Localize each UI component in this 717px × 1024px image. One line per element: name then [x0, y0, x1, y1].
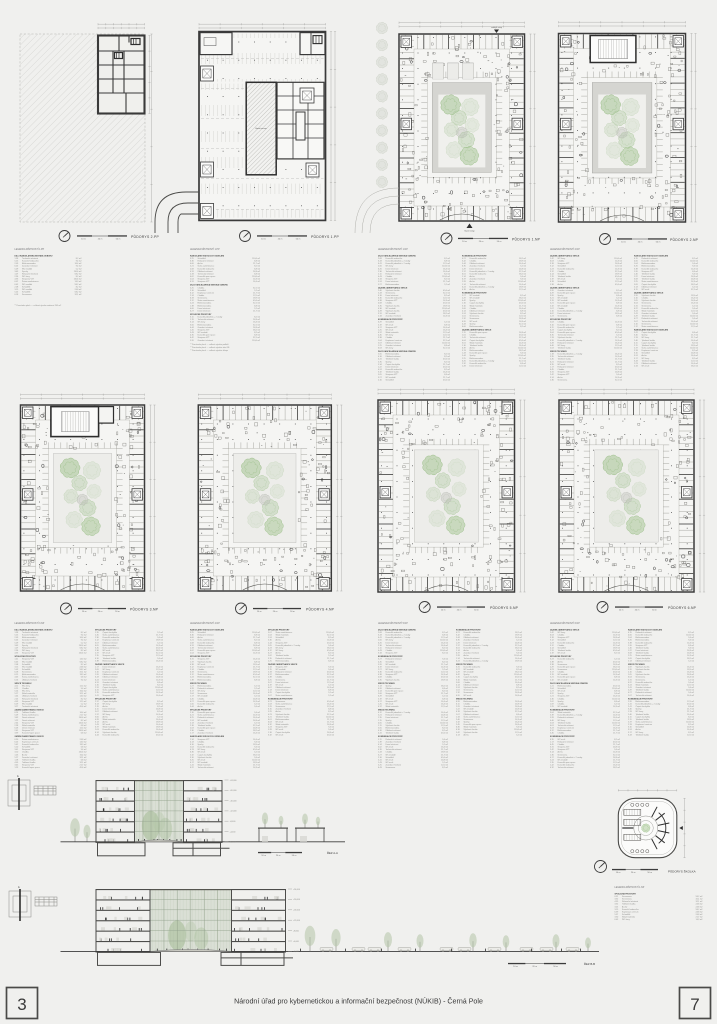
svg-text:10 m: 10 m: [81, 238, 86, 240]
svg-text:Elektrorozvodna: Elektrorozvodna: [103, 644, 118, 647]
svg-text:Archiv: Archiv: [470, 280, 475, 283]
svg-text:Zasedací místnost: Zasedací místnost: [198, 339, 214, 342]
svg-text:LEGENDA MÍSTNOSTÍ 6.NP: LEGENDA MÍSTNOSTÍ 6.NP: [550, 622, 580, 625]
svg-text:8,2 m2: 8,2 m2: [442, 653, 448, 655]
svg-text:24,8 m2: 24,8 m2: [515, 695, 522, 697]
svg-text:Zasedací místnost: Zasedací místnost: [464, 705, 480, 708]
svg-text:Schodiště: Schodiště: [558, 265, 566, 268]
svg-text:Kopírovací centrum: Kopírovací centrum: [103, 671, 120, 674]
svg-text:DILCI KANCELARSKA SESTAVA ODBO: DILCI KANCELARSKA SESTAVA ODBORU: [378, 628, 417, 631]
svg-text:Kancelář jednotlivá + 2 osoby: Kancelář jednotlivá + 2 osoby: [470, 359, 495, 362]
svg-text:4.41: 4.41: [378, 733, 382, 735]
svg-text:Archiv: Archiv: [470, 347, 475, 350]
svg-text:Výtahová šachta: Výtahová šachta: [386, 304, 401, 307]
svg-text:+16,000: +16,000: [230, 800, 237, 802]
svg-text:Technická místnost: Technická místnost: [470, 336, 487, 339]
svg-text:Technická místnost: Technická místnost: [386, 644, 403, 647]
svg-text:Strojovna VZT: Strojovna VZT: [636, 644, 649, 647]
svg-text:2.34: 2.34: [378, 316, 382, 318]
svg-text:Relaxační místnost: Relaxační místnost: [558, 341, 575, 344]
svg-text:Elektrorozvodna: Elektrorozvodna: [642, 265, 657, 268]
svg-text:Denní místnost: Denní místnost: [386, 716, 399, 719]
svg-text:Serverovna: Serverovna: [642, 302, 653, 305]
svg-text:3.27: 3.27: [15, 706, 19, 708]
svg-text:Archiv: Archiv: [470, 288, 475, 291]
svg-text:Archiv: Archiv: [558, 751, 563, 754]
svg-text:Úklidová místnost: Úklidová místnost: [22, 695, 37, 698]
svg-text:32,1 m2: 32,1 m2: [615, 379, 622, 381]
svg-text:KOMUNIKACNI PROSTORY: KOMUNIKACNI PROSTORY: [550, 709, 575, 712]
svg-text:Technická místnost: Technická místnost: [22, 257, 39, 260]
svg-text:Zasedací místnost: Zasedací místnost: [386, 315, 402, 318]
svg-text:21,7 m2: 21,7 m2: [613, 733, 620, 735]
svg-text:Schodiště: Schodiště: [198, 631, 206, 634]
svg-text:Technická místnost: Technická místnost: [198, 318, 215, 321]
svg-text:KOMUNIKACNI PROSTORY: KOMUNIKACNI PROSTORY: [268, 697, 293, 700]
svg-text:Šatna zaměstnanců: Šatna zaměstnanců: [198, 265, 215, 268]
svg-text:PŮDORYS 4.NP: PŮDORYS 4.NP: [306, 607, 335, 612]
svg-text:Denní místnost: Denní místnost: [386, 665, 399, 668]
svg-text:1.29: 1.29: [550, 706, 554, 708]
svg-text:Archiv: Archiv: [198, 636, 203, 639]
svg-text:Strojovna VZT: Strojovna VZT: [22, 764, 35, 767]
svg-text:6.18: 6.18: [15, 294, 19, 296]
svg-text:Kancelář jednotlivá + 2 osoby: Kancelář jednotlivá + 2 osoby: [386, 262, 411, 265]
svg-text:14,3 m2: 14,3 m2: [443, 316, 450, 318]
svg-text:Zasedací místnost: Zasedací místnost: [198, 721, 214, 724]
svg-text:Výtahová šachta: Výtahová šachta: [558, 336, 573, 339]
svg-text:2.34: 2.34: [634, 366, 638, 368]
svg-text:Elektrorozvodna: Elektrorozvodna: [198, 302, 213, 305]
svg-text:Elektrorozvodna: Elektrorozvodna: [470, 349, 485, 352]
svg-text:Zasedací místnost: Zasedací místnost: [464, 652, 480, 655]
svg-text:12,5 m2: 12,5 m2: [441, 706, 448, 708]
svg-text:5,2 m2: 5,2 m2: [688, 660, 694, 662]
svg-text:Technická místnost: Technická místnost: [198, 766, 215, 769]
svg-text:Šatna zaměstnanců: Šatna zaměstnanců: [276, 694, 293, 697]
svg-text:Archiv: Archiv: [636, 728, 641, 731]
svg-text:Sprchy: Sprchy: [198, 743, 204, 746]
svg-text:Sprchy: Sprchy: [22, 644, 28, 647]
svg-text:KOMUNIKACNI PROSTORY: KOMUNIKACNI PROSTORY: [378, 655, 403, 658]
svg-text:10 m: 10 m: [619, 609, 624, 611]
svg-text:Archiv: Archiv: [464, 649, 469, 652]
svg-text:10 m: 10 m: [261, 238, 266, 240]
svg-text:20 m: 20 m: [638, 241, 643, 243]
svg-text:Relaxační místnost: Relaxační místnost: [276, 657, 293, 660]
svg-text:5.27: 5.27: [378, 284, 382, 286]
svg-text:Chodba: Chodba: [558, 733, 566, 735]
svg-text:ZAZEMI ZAMESTNANCU SEKCE: ZAZEMI ZAMESTNANCU SEKCE: [550, 254, 580, 257]
svg-text:20 m: 20 m: [635, 609, 640, 611]
svg-text:2.23: 2.23: [550, 316, 554, 318]
svg-text:Výtahová šachta: Výtahová šachta: [642, 294, 657, 297]
svg-text:Výtahová šachta: Výtahová šachta: [636, 665, 651, 668]
svg-text:Šatna zaměstnanců: Šatna zaměstnanců: [103, 689, 120, 692]
svg-text:4.13: 4.13: [456, 734, 460, 736]
svg-text:Denní místnost: Denní místnost: [636, 649, 649, 652]
svg-text:Šatna zaměstnanců: Šatna zaměstnanců: [464, 715, 481, 718]
svg-text:KOMUNIKACNI PROSTORY: KOMUNIKACNI PROSTORY: [462, 254, 487, 257]
svg-text:18,9 m2: 18,9 m2: [441, 679, 448, 681]
svg-text:Čajová kuchyňka: Čajová kuchyňka: [642, 341, 657, 344]
svg-text:3.39: 3.39: [15, 733, 19, 735]
svg-text:Šatna zaměstnanců: Šatna zaměstnanců: [276, 702, 293, 705]
svg-text:Technická místnost: Technická místnost: [22, 705, 39, 708]
svg-text:Archiv: Archiv: [470, 275, 475, 278]
svg-text:Výtahová šachta: Výtahová šachta: [386, 678, 401, 681]
svg-text:Serverovna: Serverovna: [558, 663, 569, 666]
svg-text:12,5 m2: 12,5 m2: [519, 366, 526, 368]
svg-text:Denní místnost: Denní místnost: [470, 267, 483, 270]
svg-text:ZAZEMI ZAMESTNANCU SEKCE: ZAZEMI ZAMESTNANCU SEKCE: [15, 709, 45, 712]
svg-text:Čajová kuchyňka: Čajová kuchyňka: [642, 283, 657, 286]
svg-text:Denní místnost: Denní místnost: [386, 267, 399, 270]
svg-text:Úklidová místnost: Úklidová místnost: [386, 355, 401, 358]
svg-text:Sklad materiálu: Sklad materiálu: [276, 723, 289, 726]
svg-text:KANCELARE VEDOUCICH ODDELENI: KANCELARE VEDOUCICH ODDELENI: [190, 628, 225, 631]
svg-text:1.36: 1.36: [550, 379, 554, 381]
svg-text:Serverovna: Serverovna: [386, 291, 397, 294]
svg-text:Zasedací místnost: Zasedací místnost: [464, 639, 480, 642]
svg-text:1.23: 1.23: [15, 767, 19, 769]
svg-text:Schodiště: Schodiště: [386, 695, 394, 698]
svg-text:Denní místnost: Denní místnost: [103, 665, 116, 668]
svg-text:45,6 m2: 45,6 m2: [327, 734, 334, 736]
svg-text:WC muži: WC muži: [642, 289, 650, 291]
svg-text:Elektrorozvodna: Elektrorozvodna: [198, 678, 213, 681]
svg-text:Výtahová šachta: Výtahová šachta: [386, 310, 401, 313]
svg-text:18,9 m2: 18,9 m2: [515, 660, 522, 662]
svg-text:Elektrorozvodna: Elektrorozvodna: [642, 262, 657, 265]
svg-text:Úklidová místnost: Úklidová místnost: [642, 362, 657, 365]
svg-text:Výtahová šachta: Výtahová šachta: [464, 728, 479, 731]
svg-text:Denní místnost: Denní místnost: [386, 743, 399, 746]
svg-text:WC muži: WC muži: [642, 366, 650, 368]
svg-text:Technická místnost: Technická místnost: [558, 766, 575, 769]
svg-text:vedlejší vstup: vedlejší vstup: [491, 26, 502, 29]
svg-text:Sprchy: Sprchy: [636, 708, 642, 711]
svg-text:Strojovna VZT: Strojovna VZT: [198, 278, 211, 281]
svg-text:Relaxační místnost: Relaxační místnost: [22, 697, 39, 700]
svg-text:Šatna zaměstnanců: Šatna zaměstnanců: [22, 738, 39, 741]
svg-text:WC muži: WC muži: [558, 653, 566, 655]
svg-text:45,6 m2: 45,6 m2: [80, 767, 87, 769]
svg-text:4.44: 4.44: [95, 734, 99, 736]
svg-text:20 m: 20 m: [479, 241, 484, 243]
svg-text:Zasedací místnost: Zasedací místnost: [386, 344, 402, 347]
svg-text:Relaxační místnost: Relaxační místnost: [276, 671, 293, 674]
svg-text:Denní místnost: Denní místnost: [470, 365, 483, 368]
svg-text:LEGENDA MÍSTNOSTÍ 3.NP: LEGENDA MÍSTNOSTÍ 3.NP: [15, 622, 45, 625]
svg-text:Úklidová místnost: Úklidová místnost: [103, 710, 118, 713]
svg-text:Strojovna VZT: Strojovna VZT: [198, 658, 211, 661]
svg-text:DILCI KANCELARSKA SESTAVA ODBO: DILCI KANCELARSKA SESTAVA ODBORU: [378, 350, 417, 353]
svg-text:Sklad materiálu: Sklad materiálu: [470, 341, 483, 344]
svg-text:PŮDORYS 2.NP: PŮDORYS 2.NP: [670, 237, 699, 242]
svg-text:Kopírovací centrum: Kopírovací centrum: [198, 665, 215, 668]
svg-text:6.27: 6.27: [190, 311, 194, 313]
svg-text:3.35: 3.35: [378, 679, 382, 681]
svg-text:Telefonní budka: Telefonní budka: [558, 348, 572, 350]
svg-text:ŘEZ A-A: ŘEZ A-A: [327, 850, 338, 855]
svg-text:PŮDORYS 1.NP: PŮDORYS 1.NP: [512, 237, 541, 242]
svg-text:Strojovna VZT: Strojovna VZT: [22, 721, 35, 724]
svg-text:4.32: 4.32: [550, 767, 554, 769]
svg-text:Strojovna VZT: Strojovna VZT: [386, 652, 399, 655]
svg-text:Čajová kuchyňka: Čajová kuchyňka: [636, 715, 651, 718]
svg-text:Serverovna: Serverovna: [642, 304, 653, 307]
svg-text:Úklidová místnost: Úklidová místnost: [636, 659, 651, 662]
svg-text:KOMUNIKACNI PROSTORY: KOMUNIKACNI PROSTORY: [378, 735, 403, 738]
svg-text:50 m: 50 m: [656, 241, 661, 243]
svg-text:Relaxační místnost: Relaxační místnost: [198, 716, 215, 719]
svg-text:Výtahová šachta: Výtahová šachta: [636, 668, 651, 671]
svg-text:ZAZEMI ZAMESTNANCU SEKCE: ZAZEMI ZAMESTNANCU SEKCE: [95, 663, 125, 666]
svg-text:DILCI KANCELARSKA SESTAVA ODBO: DILCI KANCELARSKA SESTAVA ODBORU: [190, 284, 229, 287]
svg-text:Kancelář jednotlivá + 2 osoby: Kancelář jednotlivá + 2 osoby: [464, 644, 489, 647]
svg-text:20 m: 20 m: [273, 611, 278, 613]
svg-text:2.07: 2.07: [268, 695, 272, 697]
svg-text:DILCI KANCELARSKA SESTAVA ODBO: DILCI KANCELARSKA SESTAVA ODBORU: [15, 628, 54, 631]
svg-text:4.18: 4.18: [462, 289, 466, 291]
svg-text:14,3 m2: 14,3 m2: [253, 767, 260, 769]
svg-text:14,3 m2: 14,3 m2: [253, 653, 260, 655]
svg-text:Archiv: Archiv: [558, 283, 563, 286]
svg-text:Elektrorozvodna: Elektrorozvodna: [198, 684, 213, 687]
svg-text:Čajová kuchyňka: Čajová kuchyňka: [464, 676, 479, 679]
svg-text:1.28: 1.28: [462, 366, 466, 368]
svg-text:50 m: 50 m: [115, 611, 120, 613]
svg-text:Sklad materiálu: Sklad materiálu: [22, 692, 35, 695]
svg-text:WC invalidé: WC invalidé: [558, 679, 568, 681]
svg-text:2.19: 2.19: [550, 653, 554, 655]
svg-text:Strojovna VZT: Strojovna VZT: [22, 278, 35, 281]
svg-text:** Poznámka ploch — celková: ** Poznámka ploch — celková výměra stání…: [190, 346, 229, 349]
svg-text:16,4 m2: 16,4 m2: [253, 733, 260, 735]
svg-text:Úklidová místnost: Úklidová místnost: [470, 310, 485, 313]
svg-text:ZAZEMI ZAMESTNANCU SEKCE: ZAZEMI ZAMESTNANCU SEKCE: [550, 628, 580, 631]
svg-text:50 m: 50 m: [497, 241, 502, 243]
svg-text:Šatna zaměstnanců: Šatna zaměstnanců: [642, 347, 659, 350]
svg-text:Úklidová místnost: Úklidová místnost: [386, 341, 401, 344]
svg-text:Kancelář jednotlivá + 2 osoby: Kancelář jednotlivá + 2 osoby: [198, 316, 223, 319]
svg-text:20 m: 20 m: [278, 238, 283, 240]
svg-text:110,6 m2: 110,6 m2: [614, 348, 622, 350]
svg-text:6.37: 6.37: [378, 706, 382, 708]
svg-text:Strojovna VZT: Strojovna VZT: [386, 278, 399, 281]
svg-text:Denní místnost: Denní místnost: [276, 681, 289, 684]
svg-text:3.34: 3.34: [378, 653, 382, 655]
svg-text:Šatna zaměstnanců: Šatna zaměstnanců: [636, 721, 653, 724]
svg-text:Denní místnost: Denní místnost: [103, 708, 116, 711]
svg-text:Sklad materiálu: Sklad materiálu: [464, 678, 477, 681]
svg-text:5.32: 5.32: [550, 679, 554, 681]
svg-text:Serverovna: Serverovna: [198, 692, 209, 695]
svg-text:Strojovna VZT: Strojovna VZT: [198, 280, 211, 283]
svg-text:Elektrorozvodna: Elektrorozvodna: [22, 262, 37, 265]
svg-text:KOMUNIKACNI PROSTORY: KOMUNIKACNI PROSTORY: [456, 628, 481, 631]
svg-text:Strojovna VZT: Strojovna VZT: [276, 665, 289, 668]
svg-text:Strojovna VZT: Strojovna VZT: [198, 328, 211, 331]
svg-text:Elektrorozvodna: Elektrorozvodna: [22, 636, 37, 639]
svg-text:Čajová kuchyňka: Čajová kuchyňka: [558, 328, 573, 331]
svg-text:Kancelář jednotlivá + 2 osoby: Kancelář jednotlivá + 2 osoby: [470, 270, 495, 273]
svg-text:Schodiště: Schodiště: [22, 746, 30, 749]
svg-text:+20,000: +20,000: [230, 790, 237, 792]
svg-text:Elektrorozvodna: Elektrorozvodna: [558, 684, 573, 687]
svg-text:Denní místnost: Denní místnost: [642, 275, 655, 278]
svg-text:Šatna zaměstnanců: Šatna zaměstnanců: [642, 325, 659, 328]
svg-text:+24,000: +24,000: [230, 780, 237, 782]
svg-text:Strojovna VZT: Strojovna VZT: [558, 748, 571, 751]
svg-text:KANCELARE VEDOUCICH ODDELENI: KANCELARE VEDOUCICH ODDELENI: [628, 628, 663, 631]
svg-text:Archiv: Archiv: [103, 715, 108, 718]
svg-text:9,4 m2: 9,4 m2: [254, 706, 260, 708]
svg-text:Čajová kuchyňka: Čajová kuchyňka: [276, 691, 291, 694]
svg-text:ZAZEMI ZAMESTNANCU SEKCE: ZAZEMI ZAMESTNANCU SEKCE: [634, 291, 664, 294]
svg-text:Úklidová místnost: Úklidová místnost: [198, 644, 213, 647]
svg-text:Kancelář jednotlivá + 2 osoby: Kancelář jednotlivá + 2 osoby: [276, 644, 301, 647]
svg-text:Čajová kuchyňka: Čajová kuchyňka: [276, 731, 291, 734]
svg-text:LEGENDA MÍSTNOSTÍ 5.NP: LEGENDA MÍSTNOSTÍ 5.NP: [378, 622, 408, 625]
svg-text:Sprchy: Sprchy: [642, 334, 648, 337]
svg-text:Denní místnost: Denní místnost: [386, 641, 399, 644]
svg-text:Výtahová šachta: Výtahová šachta: [464, 731, 479, 734]
svg-text:KANCELARE VEDOUCICH ODDELENI: KANCELARE VEDOUCICH ODDELENI: [634, 328, 669, 331]
svg-text:Strojovna VZT: Strojovna VZT: [558, 695, 571, 698]
svg-text:Technická místnost: Technická místnost: [464, 657, 481, 660]
svg-text:Serverovna: Serverovna: [558, 315, 569, 318]
svg-text:+4,000: +4,000: [230, 831, 236, 833]
svg-text:Zasedací místnost: Zasedací místnost: [470, 278, 486, 281]
svg-text:Schodiště: Schodiště: [386, 756, 394, 759]
svg-text:LEGENDA MÍSTNOSTÍ 4.NP: LEGENDA MÍSTNOSTÍ 4.NP: [190, 622, 220, 625]
svg-text:Šatna zaměstnanců: Šatna zaměstnanců: [22, 280, 39, 283]
svg-text:Sklad materiálu: Sklad materiálu: [386, 705, 399, 708]
svg-text:6,8 m2: 6,8 m2: [616, 316, 622, 318]
svg-text:Archiv: Archiv: [642, 354, 647, 357]
svg-text:Serverovna: Serverovna: [464, 691, 475, 694]
svg-text:Elektrorozvodna: Elektrorozvodna: [103, 659, 118, 662]
svg-text:Čajová kuchyňka: Čajová kuchyňka: [386, 363, 401, 366]
svg-text:KANCELARE VEDOUCICH ODDELENI: KANCELARE VEDOUCICH ODDELENI: [634, 254, 669, 257]
svg-text:Kancelář jednotlivá + 2 osoby: Kancelář jednotlivá + 2 osoby: [558, 310, 583, 313]
svg-text:Úklidová místnost: Úklidová místnost: [103, 676, 118, 679]
svg-text:Serverovna: Serverovna: [636, 676, 647, 679]
svg-text:Čajová kuchyňka: Čajová kuchyňka: [636, 657, 651, 660]
svg-text:Relaxační místnost: Relaxační místnost: [642, 257, 659, 260]
svg-text:Zasedací místnost: Zasedací místnost: [558, 289, 574, 292]
svg-text:6.03: 6.03: [378, 348, 382, 350]
svg-text:Výtahová šachta: Výtahová šachta: [103, 731, 118, 734]
svg-text:DILCI KANCELARSKA SESTAVA ODBO: DILCI KANCELARSKA SESTAVA ODBORU: [15, 254, 54, 257]
svg-text:Úklidová místnost: Úklidová místnost: [103, 641, 118, 644]
svg-text:6,8 m2: 6,8 m2: [328, 660, 334, 662]
svg-text:Relaxační místnost: Relaxační místnost: [558, 360, 575, 363]
svg-text:6,8 m2: 6,8 m2: [254, 679, 260, 681]
svg-text:Technická místnost: Technická místnost: [642, 320, 659, 323]
svg-text:5.38: 5.38: [550, 284, 554, 286]
svg-text:Elektrorozvodna: Elektrorozvodna: [276, 718, 291, 721]
svg-text:Zasedací místnost: Zasedací místnost: [22, 756, 38, 759]
svg-text:5.13: 5.13: [628, 660, 632, 662]
svg-text:Relaxační místnost: Relaxační místnost: [636, 631, 653, 634]
svg-text:5,2 m2: 5,2 m2: [516, 734, 522, 736]
svg-text:LEGENDA MÍSTNOSTÍ 2.NP: LEGENDA MÍSTNOSTÍ 2.NP: [550, 248, 580, 251]
svg-text:Sklad materiálu: Sklad materiálu: [198, 764, 211, 767]
svg-text:Elektrorozvodna: Elektrorozvodna: [198, 323, 213, 326]
svg-text:Archiv: Archiv: [198, 705, 203, 708]
svg-text:16,4 m2: 16,4 m2: [687, 695, 694, 697]
svg-text:Strojovna VZT: Strojovna VZT: [198, 652, 211, 655]
svg-text:Technická místnost: Technická místnost: [22, 631, 39, 634]
svg-text:Sklad materiálu: Sklad materiálu: [558, 711, 571, 714]
svg-text:110,6 m2: 110,6 m2: [79, 653, 87, 655]
svg-text:Elektrorozvodna: Elektrorozvodna: [636, 639, 651, 642]
svg-text:Schodiště: Schodiště: [558, 639, 566, 642]
svg-text:45,6 m2: 45,6 m2: [156, 734, 163, 736]
svg-text:Serverovna: Serverovna: [198, 671, 209, 674]
svg-text:Technická místnost: Technická místnost: [558, 334, 575, 337]
svg-text:PŮDORYS 5.NP: PŮDORYS 5.NP: [490, 605, 519, 610]
svg-text:Serverovna: Serverovna: [558, 378, 569, 381]
svg-text:20 m: 20 m: [457, 609, 462, 611]
svg-text:50 m: 50 m: [296, 238, 301, 240]
svg-text:Serverovna: Serverovna: [22, 671, 33, 674]
svg-text:Výtahová šachta: Výtahová šachta: [198, 756, 213, 759]
svg-text:Denní místnost: Denní místnost: [464, 641, 477, 644]
svg-text:5.20: 5.20: [190, 340, 194, 342]
svg-text:LEGENDA MÍSTNOSTÍ 1.PP: LEGENDA MÍSTNOSTÍ 1.PP: [190, 248, 220, 251]
svg-text:ZAZEMI ZAMESTNANCU SEKCE: ZAZEMI ZAMESTNANCU SEKCE: [268, 663, 298, 666]
svg-text:Elektrorozvodna: Elektrorozvodna: [386, 283, 401, 286]
svg-text:Serverovna: Serverovna: [276, 678, 287, 681]
svg-text:16,4 m2: 16,4 m2: [253, 281, 260, 283]
svg-text:Elektrorozvodna: Elektrorozvodna: [636, 636, 651, 639]
svg-text:Archiv: Archiv: [464, 654, 469, 657]
svg-text:45,6 m2: 45,6 m2: [615, 284, 622, 286]
svg-text:DILCI KANCELARSKA SESTAVA ODBO: DILCI KANCELARSKA SESTAVA ODBORU: [378, 254, 417, 257]
svg-text:KOMUNIKACNI PROSTORY: KOMUNIKACNI PROSTORY: [628, 697, 653, 700]
svg-text:Kancelář jednotlivá + 2 osoby: Kancelář jednotlivá + 2 osoby: [386, 636, 411, 639]
svg-text:1.12: 1.12: [634, 326, 638, 328]
svg-text:Strojovna VZT: Strojovna VZT: [642, 270, 655, 273]
svg-text:Relaxační místnost: Relaxační místnost: [642, 317, 659, 320]
svg-text:2.04: 2.04: [190, 653, 194, 655]
svg-text:PŮDORYS 1.PP: PŮDORYS 1.PP: [311, 234, 339, 239]
svg-text:32,1 m2: 32,1 m2: [443, 348, 450, 350]
svg-text:Relaxační místnost: Relaxační místnost: [636, 691, 653, 694]
svg-text:Elektrorozvodna: Elektrorozvodna: [198, 304, 213, 307]
svg-text:Kancelář jednotlivá + 2 osoby: Kancelář jednotlivá + 2 osoby: [464, 659, 489, 662]
svg-text:PŮDORYS 6.NP: PŮDORYS 6.NP: [668, 605, 697, 610]
svg-text:WC invalidé: WC invalidé: [558, 706, 568, 708]
svg-text:Sklad materiálu: Sklad materiálu: [386, 331, 399, 334]
svg-text:Strojovna VZT: Strojovna VZT: [386, 692, 399, 695]
svg-text:Strojovna VZT: Strojovna VZT: [22, 729, 35, 732]
svg-text:5.45: 5.45: [550, 733, 554, 735]
svg-text:Úklidová místnost: Úklidová místnost: [464, 684, 479, 687]
svg-text:Strojovna VZT: Strojovna VZT: [198, 336, 211, 339]
svg-text:Archiv: Archiv: [276, 639, 281, 642]
svg-text:5.41: 5.41: [95, 695, 99, 697]
svg-text:Sklad materiálu: Sklad materiálu: [642, 310, 655, 313]
svg-text:5.03: 5.03: [550, 348, 554, 350]
svg-text:Výtahová šachta: Výtahová šachta: [386, 724, 401, 727]
svg-text:Sklad materiálu: Sklad materiálu: [103, 718, 116, 721]
svg-text:Serverovna: Serverovna: [276, 705, 287, 708]
